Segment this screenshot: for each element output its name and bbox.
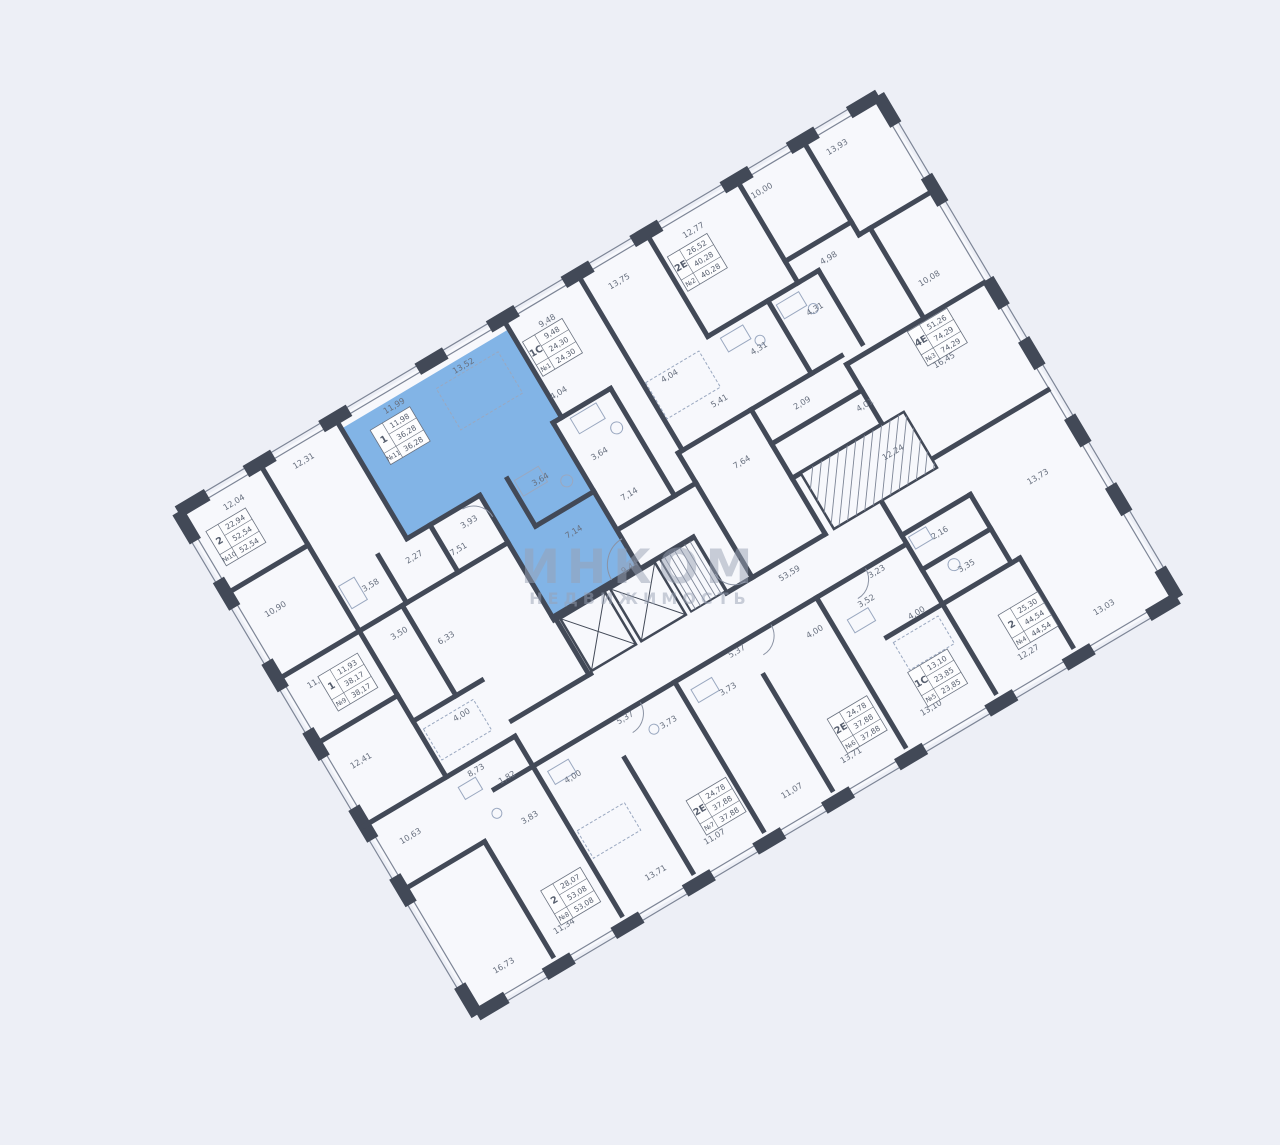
watermark-line1: ИНКОМ (521, 540, 760, 595)
floor-plan-page: 12,0412,3111,9913,529,4813,7512,7710,001… (0, 0, 1280, 1145)
watermark-line2: НЕДВИЖИМОСТЬ (529, 589, 751, 608)
watermark: ИНКОМ НЕДВИЖИМОСТЬ (521, 540, 760, 608)
floor-plan: 12,0412,3111,9913,529,4813,7512,7710,001… (0, 0, 1280, 1145)
